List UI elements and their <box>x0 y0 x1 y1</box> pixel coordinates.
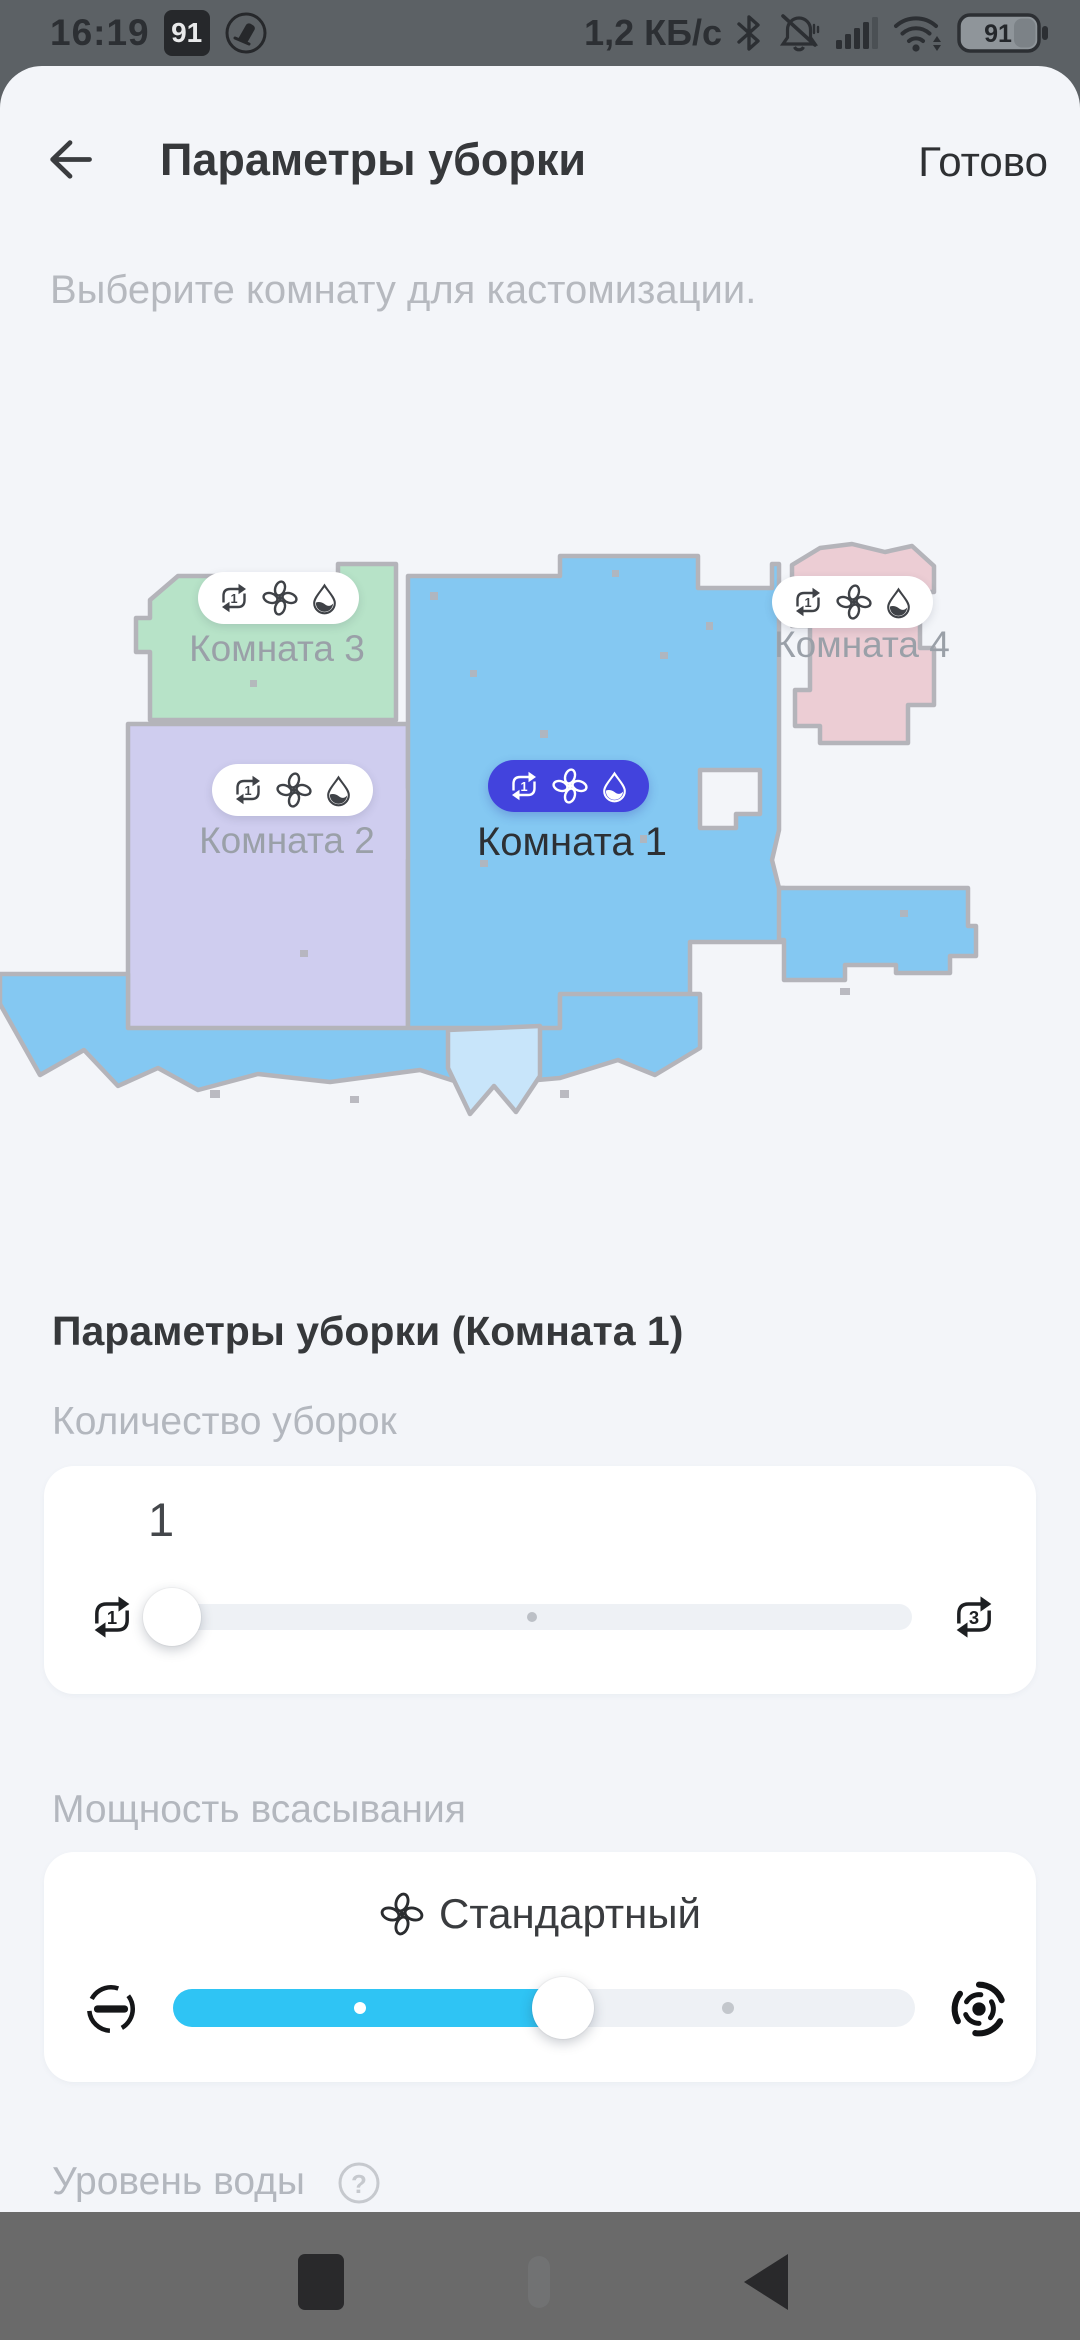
bell-muted-icon <box>776 11 822 55</box>
fan-icon <box>275 771 313 809</box>
quiet-mode-icon[interactable] <box>82 1980 140 2038</box>
room-1-pill-selected[interactable]: 1 <box>488 760 649 812</box>
network-speed: 1,2 КБ/с <box>584 12 722 54</box>
repeat-icon: 1 <box>506 768 542 804</box>
nav-back-button[interactable] <box>744 2254 788 2310</box>
room-4-pill[interactable]: 1 <box>772 576 933 628</box>
back-button[interactable] <box>44 134 96 186</box>
water-drop-icon <box>882 586 915 619</box>
suction-mode-row: Стандартный <box>0 1890 1080 1938</box>
recents-button[interactable] <box>298 2254 344 2310</box>
fan-icon <box>379 1891 425 1937</box>
svg-text:1: 1 <box>230 591 237 606</box>
room-4-label[interactable]: Комната 4 <box>742 624 982 666</box>
room-1-area-light-patch <box>448 1026 540 1114</box>
hat-app-icon <box>224 11 268 55</box>
status-bar: 16:19 91 1,2 КБ/с <box>0 0 1080 66</box>
room-2-pill[interactable]: 1 <box>212 764 373 816</box>
slider-tick <box>354 2002 366 2014</box>
room-3-label[interactable]: Комната 3 <box>167 628 387 670</box>
slider-tick <box>527 1612 537 1622</box>
question-icon[interactable]: ? <box>336 2160 382 2206</box>
section-title: Параметры уборки (Комната 1) <box>52 1308 683 1355</box>
phone-screen: 16:19 91 1,2 КБ/с <box>0 0 1080 2340</box>
cleaning-count-label: Количество уборок <box>52 1400 397 1444</box>
suction-power-card <box>44 1852 1036 2082</box>
svg-text:?: ? <box>351 2169 367 2199</box>
fan-icon <box>261 579 299 617</box>
intro-text: Выберите комнату для кастомизации. <box>50 268 756 313</box>
water-level-label: Уровень воды <box>52 2160 305 2204</box>
repeat-max-icon: 3 <box>948 1591 1000 1643</box>
done-button[interactable]: Готово <box>918 138 1048 186</box>
repeat-min-icon: 1 <box>86 1591 138 1643</box>
cleaning-count-slider-thumb[interactable] <box>143 1588 201 1646</box>
bluetooth-icon <box>734 12 764 54</box>
svg-text:1: 1 <box>107 1607 117 1628</box>
wifi-icon <box>892 11 944 55</box>
max-power-vortex-icon[interactable] <box>948 1978 1010 2040</box>
water-drop-icon <box>308 582 341 615</box>
cleaning-count-value: 1 <box>148 1492 174 1547</box>
svg-text:3: 3 <box>969 1607 979 1628</box>
water-drop-icon <box>322 774 355 807</box>
repeat-icon: 1 <box>790 584 826 620</box>
fan-icon <box>551 767 589 805</box>
room-1-label[interactable]: Комната 1 <box>442 820 702 865</box>
room-3-pill[interactable]: 1 <box>198 572 359 624</box>
suction-power-label: Мощность всасывания <box>52 1788 466 1832</box>
cleaning-count-card <box>44 1466 1036 1694</box>
repeat-icon: 1 <box>216 580 252 616</box>
room-1-area-east <box>779 888 976 980</box>
home-button[interactable] <box>528 2256 550 2308</box>
battery-percent-text: 91 <box>984 20 1012 48</box>
battery-icon: 91 <box>956 11 1050 55</box>
svg-text:1: 1 <box>804 595 811 610</box>
back-arrow-icon <box>44 134 96 186</box>
signal-strength-icon <box>834 13 880 53</box>
fan-icon <box>835 583 873 621</box>
clock: 16:19 <box>50 12 150 54</box>
repeat-icon: 1 <box>230 772 266 808</box>
page-title: Параметры уборки <box>160 134 586 186</box>
svg-text:1: 1 <box>520 779 527 794</box>
svg-text:1: 1 <box>244 783 251 798</box>
slider-tick <box>722 2002 734 2014</box>
room-2-label[interactable]: Комната 2 <box>177 820 397 862</box>
suction-slider-thumb[interactable] <box>532 1977 594 2039</box>
water-drop-icon <box>598 770 631 803</box>
suction-slider-fill <box>173 1989 563 2027</box>
battery-widget-icon: 91 <box>164 10 210 56</box>
suction-mode-value: Стандартный <box>439 1890 701 1938</box>
